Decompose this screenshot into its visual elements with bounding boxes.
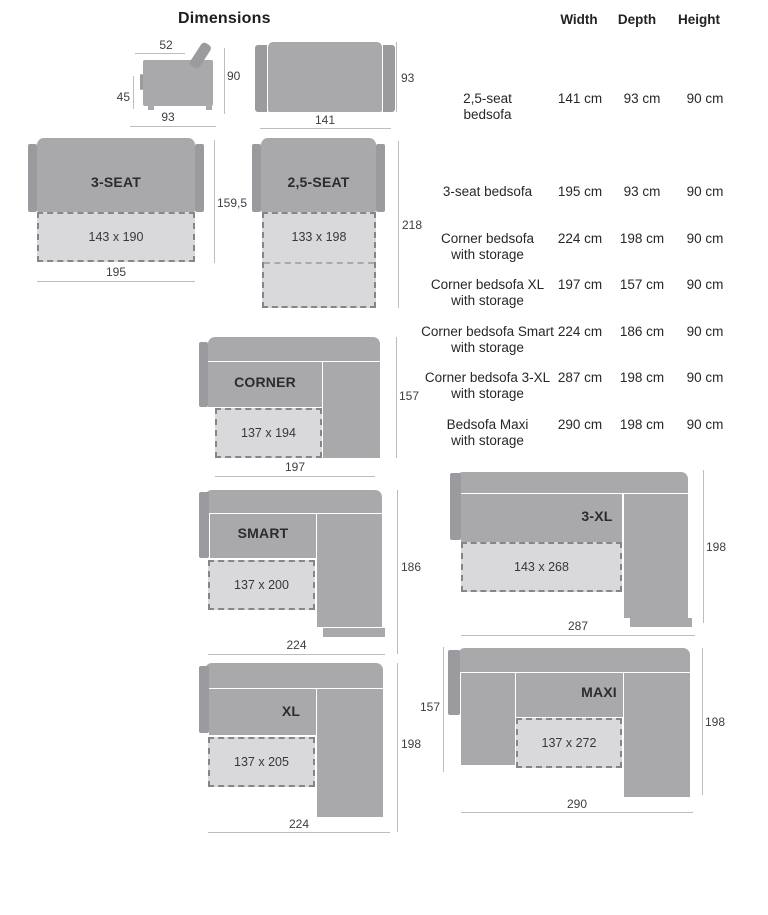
product-name: 3-seat bedsofa [415, 184, 560, 200]
value-width: 224 cm [545, 231, 615, 246]
sofa-part-arm [28, 144, 37, 212]
dim-bottom: 224 [208, 638, 385, 652]
product-name-line: with storage [415, 247, 560, 263]
dim-line [396, 42, 397, 112]
dim-bottom: 287 [461, 619, 695, 633]
value-width: 287 cm [545, 370, 615, 385]
dim-line [208, 654, 385, 655]
value-depth: 198 cm [610, 370, 674, 385]
bed-size: 137 x 200 [234, 578, 289, 592]
sofa-part-body [323, 362, 380, 458]
dim-left: 45 [115, 90, 130, 104]
diagram-3-seat: 3-SEAT 143 x 190 195 159,5 [25, 138, 257, 288]
sofa-part-body [206, 106, 212, 110]
bed-area: 143 x 268 [461, 542, 622, 592]
product-name-line: with storage [415, 340, 560, 356]
sofa-part-body [205, 490, 382, 513]
value-height: 90 cm [672, 91, 738, 106]
dim-line [135, 53, 185, 54]
dim-bottom: 197 [215, 460, 375, 474]
sofa-label: 3-SEAT [37, 174, 195, 190]
sofa-label: SMART [210, 525, 316, 541]
bed-size: 137 x 205 [234, 755, 289, 769]
product-name-line: 3-seat bedsofa [415, 184, 560, 200]
value-width: 141 cm [545, 91, 615, 106]
product-name-line: bedsofa [415, 107, 560, 123]
sofa-part-arm [255, 45, 267, 112]
product-name-line: with storage [415, 433, 560, 449]
value-height: 90 cm [672, 370, 738, 385]
sofa-part-body [624, 673, 690, 797]
sofa-label: MAXI [569, 684, 629, 700]
bed-size: 137 x 272 [542, 736, 597, 750]
sofa-part-arm [199, 492, 209, 558]
dim-line [224, 48, 225, 114]
value-height: 90 cm [672, 184, 738, 199]
sofa-part-arm [252, 144, 261, 212]
bed-area: 137 x 205 [208, 737, 315, 787]
dim-line [398, 141, 399, 308]
column-header-depth: Depth [607, 12, 667, 27]
sofa-part-body [456, 472, 688, 493]
sofa-label: CORNER [208, 374, 322, 390]
dim-line [37, 281, 195, 282]
value-depth: 186 cm [610, 324, 674, 339]
sofa-part-body [208, 337, 380, 361]
bed-area: 137 x 200 [208, 560, 315, 610]
diagram-corner: CORNER 137 x 194 197 157 [195, 335, 435, 485]
value-width: 197 cm [545, 277, 615, 292]
dim-line [133, 76, 134, 109]
dim-line [397, 663, 398, 832]
diagram-3-xl: 3-XL 143 x 268 287 198 [445, 468, 740, 640]
diagram-maxi: MAXI 137 x 272 290 198 157 [420, 645, 735, 820]
product-name-line: Corner bedsofa 3-XL [415, 370, 560, 386]
dim-right: 198 [401, 737, 421, 751]
value-width: 195 cm [545, 184, 615, 199]
value-depth: 93 cm [610, 184, 674, 199]
dim-left: 157 [420, 700, 440, 714]
dim-line [461, 812, 693, 813]
dim-line [461, 635, 695, 636]
sofa-part-arm [450, 473, 461, 540]
dim-line [397, 490, 398, 654]
diagram-side-view: 52 45 93 90 [115, 38, 260, 138]
product-name: Corner bedsofa 3-XL with storage [415, 370, 560, 401]
product-name-line: Corner bedsofa Smart [415, 324, 560, 340]
dim-line [215, 476, 375, 477]
column-header-width: Width [549, 12, 609, 27]
diagram-25-seat-small-top-view: 141 93 [255, 40, 427, 135]
sofa-part-arm [376, 144, 385, 212]
product-name: Corner bedsofa Smart with storage [415, 324, 560, 355]
dim-bottom: 290 [461, 797, 693, 811]
product-name-line: 2,5-seat [415, 91, 560, 107]
page-title: Dimensions [178, 10, 271, 28]
dim-right: 218 [402, 218, 422, 232]
product-name-line: Bedsofa Maxi [415, 417, 560, 433]
bed-fold-line [264, 262, 374, 264]
product-name-line: with storage [415, 386, 560, 402]
value-height: 90 cm [672, 417, 738, 432]
bed-size: 143 x 190 [89, 230, 144, 244]
sofa-part-body [268, 42, 382, 112]
value-depth: 198 cm [610, 231, 674, 246]
value-height: 90 cm [672, 231, 738, 246]
sofa-part-arm [448, 650, 460, 715]
bed-area: 143 x 190 [37, 212, 195, 262]
bed-area: 133 x 198 [262, 212, 376, 308]
dim-line [703, 470, 704, 623]
sofa-part-body [317, 514, 382, 627]
sofa-part-arm [199, 666, 209, 733]
dim-right: 159,5 [217, 196, 247, 210]
value-height: 90 cm [672, 324, 738, 339]
dim-right: 186 [401, 560, 421, 574]
product-name: Corner bedsofa with storage [415, 231, 560, 262]
dim-bottom: 224 [208, 817, 390, 831]
column-header-height: Height [668, 12, 730, 27]
dim-right: 90 [227, 69, 240, 83]
value-width: 224 cm [545, 324, 615, 339]
product-name-line: with storage [415, 293, 560, 309]
sofa-part-arm [199, 342, 208, 407]
dim-bottom: 195 [37, 265, 195, 279]
sofa-part-body [458, 648, 690, 672]
diagram-xl: XL 137 x 205 224 198 [195, 660, 435, 840]
diagram-25-seat: 2,5-SEAT 133 x 198 218 [250, 138, 435, 313]
value-depth: 157 cm [610, 277, 674, 292]
dim-line [130, 126, 216, 127]
bed-area: 137 x 194 [215, 408, 322, 458]
dim-line [396, 337, 397, 458]
sofa-part-body [461, 673, 515, 765]
product-name-line: Corner bedsofa [415, 231, 560, 247]
sofa-part-body [205, 663, 383, 688]
value-depth: 198 cm [610, 417, 674, 432]
dim-right: 157 [399, 389, 419, 403]
sofa-part-arm [383, 45, 395, 112]
product-name-line: Corner bedsofa XL [415, 277, 560, 293]
bed-area: 137 x 272 [516, 718, 622, 768]
value-depth: 93 cm [610, 91, 674, 106]
bed-size: 143 x 268 [514, 560, 569, 574]
product-name: 2,5-seat bedsofa [415, 91, 560, 122]
diagram-smart: SMART 137 x 200 224 186 [195, 488, 435, 660]
value-width: 290 cm [545, 417, 615, 432]
value-height: 90 cm [672, 277, 738, 292]
product-name: Bedsofa Maxi with storage [415, 417, 560, 448]
dim-bottom: 93 [150, 110, 186, 124]
dim-top: 52 [148, 38, 184, 52]
dim-line [443, 647, 444, 772]
dim-line [702, 648, 703, 795]
dim-bottom: 141 [295, 113, 355, 127]
product-name: Corner bedsofa XL with storage [415, 277, 560, 308]
sofa-part-body [323, 628, 385, 637]
dim-line [208, 832, 390, 833]
dim-right: 93 [401, 71, 414, 85]
bed-size: 137 x 194 [241, 426, 296, 440]
sofa-label: 2,5-SEAT [261, 174, 376, 190]
bed-size: 133 x 198 [292, 230, 347, 244]
dim-line [260, 128, 391, 129]
dimensions-sheet: Dimensions Width Depth Height 2,5-seat b… [0, 0, 768, 915]
sofa-label: 3-XL [545, 508, 649, 524]
dim-line [214, 140, 215, 263]
dim-right: 198 [706, 540, 726, 554]
sofa-part-arm [195, 144, 204, 212]
dim-right: 198 [705, 715, 725, 729]
sofa-label: XL [239, 703, 343, 719]
sofa-part-body [143, 60, 213, 106]
